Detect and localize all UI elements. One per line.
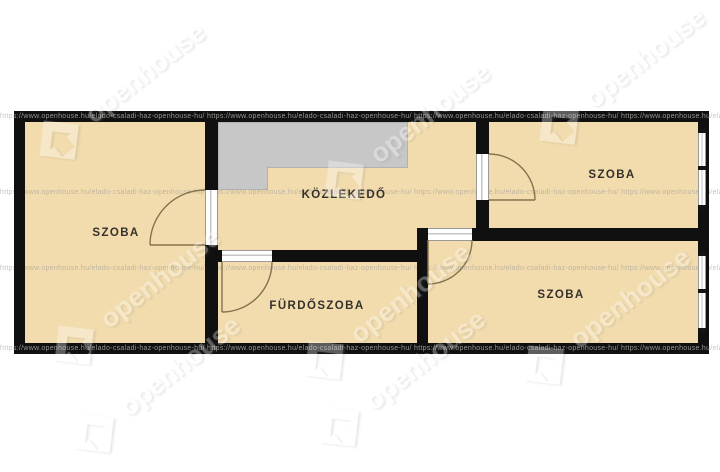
brand-watermark-text: openhouse bbox=[579, 1, 712, 114]
watermark-url-line: https://www.openhouse.hu/elado-csaladi-h… bbox=[0, 264, 720, 273]
window-tick bbox=[698, 166, 706, 170]
openhouse-logo-icon bbox=[300, 388, 379, 467]
room-label-kozlekedo: KÖZLEKEDŐ bbox=[302, 189, 387, 201]
door-frame-top-right-room bbox=[476, 154, 489, 200]
wall-rooms-divider bbox=[472, 228, 698, 241]
wall-left-room-lower bbox=[205, 245, 218, 343]
wall-outer-left bbox=[14, 111, 25, 354]
wall-bath-right bbox=[417, 241, 428, 343]
wall-bath-top bbox=[272, 250, 428, 262]
window-tick bbox=[698, 205, 706, 209]
door-swing-top-right-room bbox=[489, 154, 536, 201]
wall-left-room-upper bbox=[205, 122, 218, 190]
door-frame-left-room bbox=[205, 190, 218, 245]
window-tick bbox=[698, 129, 706, 133]
door-swing-left-room bbox=[150, 190, 206, 246]
window-tick bbox=[698, 328, 706, 332]
watermark-url-line: https://www.openhouse.hu/elado-csaladi-h… bbox=[0, 344, 720, 353]
wall-room-top-stub bbox=[417, 228, 428, 241]
floor-plan: https://www.openhouse.hu/elado-csaladi-h… bbox=[0, 0, 720, 450]
stairs-landing bbox=[218, 166, 268, 190]
door-frame-bathroom bbox=[222, 250, 272, 262]
door-swing-bottom-right-room bbox=[428, 240, 473, 285]
stairs-area bbox=[218, 122, 408, 168]
door-swing-bathroom bbox=[222, 262, 273, 313]
openhouse-logo-icon bbox=[55, 394, 134, 472]
window-tick bbox=[698, 289, 706, 293]
window-tick bbox=[698, 252, 706, 256]
watermark-url-line: https://www.openhouse.hu/elado-csaladi-h… bbox=[0, 112, 720, 121]
room-label-szoba-bottom-right: SZOBA bbox=[537, 289, 584, 301]
room-label-furdoszoba: FÜRDŐSZOBA bbox=[269, 300, 364, 312]
wall-hall-room-upper bbox=[476, 122, 489, 154]
room-label-szoba-top-right: SZOBA bbox=[588, 169, 635, 181]
room-label-szoba-left: SZOBA bbox=[92, 227, 139, 239]
